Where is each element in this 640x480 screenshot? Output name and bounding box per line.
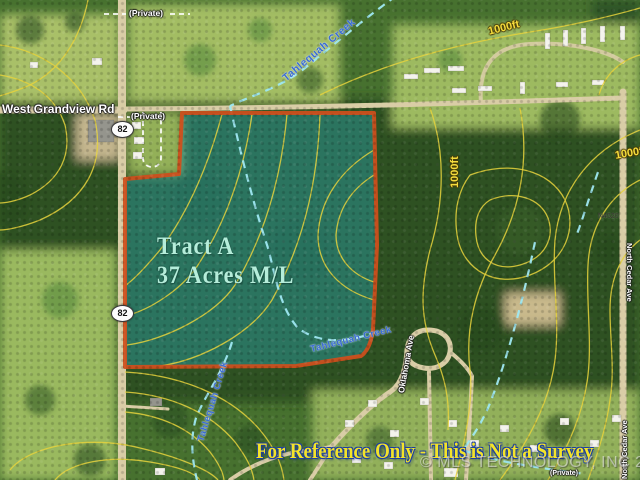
road-sub-vertical: [429, 372, 431, 480]
aerial-map: West Grandview Rd (Private) (Private) (P…: [0, 0, 640, 480]
highway-82-shield-top: 82: [111, 121, 134, 138]
map-graphics: [0, 0, 640, 480]
highway-82-number: 82: [117, 308, 127, 318]
highway-82-shield-bottom: 82: [111, 305, 134, 322]
highway-82-number: 82: [117, 124, 127, 134]
